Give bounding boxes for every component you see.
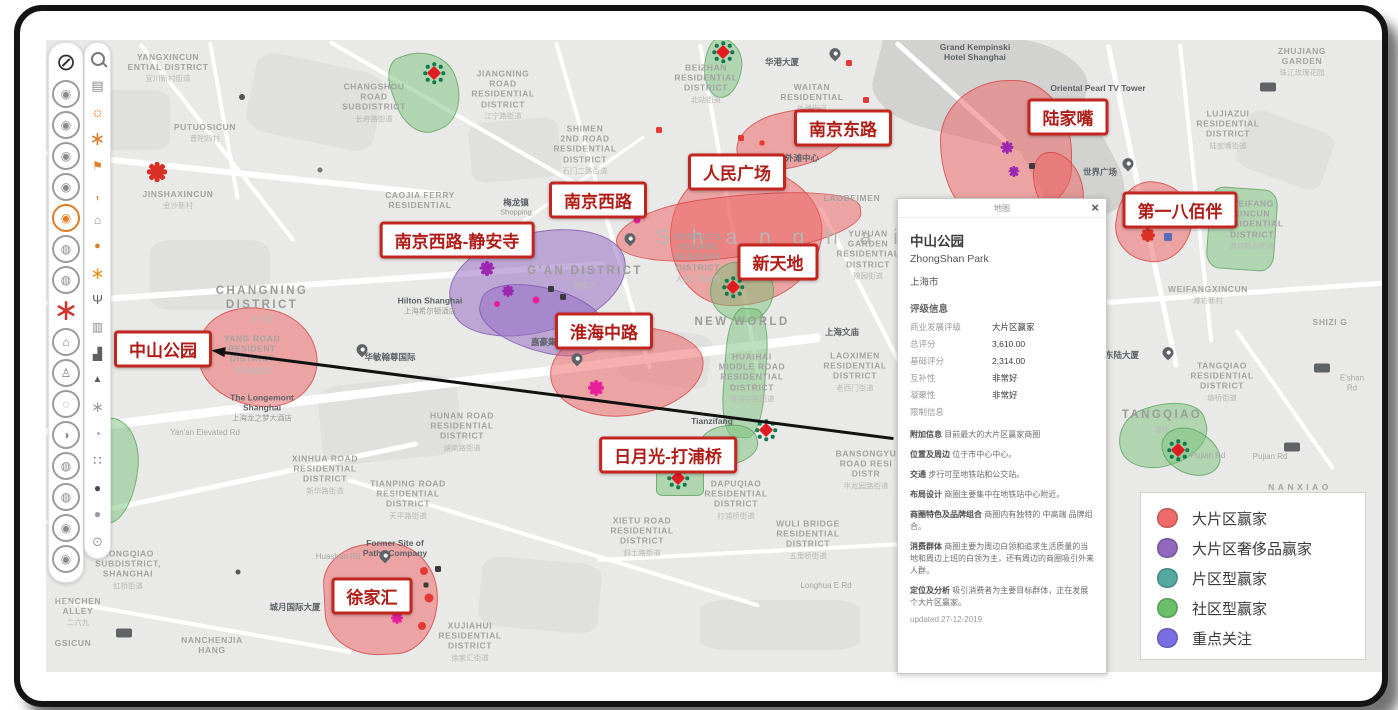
road-shield-badge [1260,83,1276,92]
icon-ring: ◉ [52,142,80,170]
cluster-marker[interactable] [718,47,728,57]
star-marker[interactable] [147,162,167,182]
dot-marker[interactable] [420,567,428,575]
bank-icon[interactable]: ⌂ [52,328,80,355]
cluster-marker[interactable] [429,68,439,78]
star-marker[interactable] [1001,141,1014,154]
icon-ring: ◌ [52,390,80,418]
grid-icon-glyph: ∷ [93,454,101,467]
square-marker[interactable] [435,566,441,572]
poi-name: Yan'an Elevated Rd [170,428,240,438]
place-title: 中山公园 [910,230,1094,250]
globe-icon-glyph: ◍ [61,460,71,472]
gear-icon[interactable]: ∗ [87,262,108,284]
paragraph-label: 定位及分析 [910,586,952,595]
map-district-label: SHIZI G [1313,317,1348,327]
cluster-marker[interactable] [673,473,683,483]
streetview-icon[interactable]: ◉ [52,80,80,107]
globe-icon[interactable]: ◍ [52,266,80,293]
info-paragraph: 附加信息 目前最大的大片区赢家商圈 [910,429,1094,441]
map-district-label: TANGQIAO RESIDENTIAL DISTRICT塘桥街道 [1190,361,1253,404]
info-row: 互补性非常好 [910,370,1094,387]
district-name-zh: 豫园街道 [836,270,899,281]
red-burst-icon[interactable]: ∗ [52,297,80,324]
globe-icon-glyph: ◍ [61,243,71,255]
map-district-label: BANSONGYU ROAD RESI DISTR半淞园路街道 [836,449,897,492]
map-area-label[interactable]: 南京西路-静安寺 [380,222,535,259]
map-district-label: XUJIAHUI RESIDENTIAL DISTRICT徐家汇街道 [438,621,501,664]
info-row: 基础评分2,314.00 [910,353,1094,370]
comma-icon-glyph: , [95,184,100,201]
icon-ring: ◍ [52,452,80,480]
updated-timestamp: updated 27-12-2019 [910,615,1094,624]
road-line [56,598,352,654]
road-line [1106,280,1382,305]
map-area-label[interactable]: 日月光-打浦桥 [599,437,737,474]
map-area-label[interactable]: 中山公园 [114,331,212,368]
icon-ring: ◉ [52,111,80,139]
grid-icon[interactable]: ∷ [87,450,108,472]
dot-marker[interactable] [494,301,500,307]
map-poi-label: 华港大厦 [765,57,799,67]
district-name-zh: 金沙新村 [143,200,214,211]
camera-icon-glyph: ◉ [61,522,71,534]
info-row-label: 总评分 [910,336,992,353]
layers-icon[interactable]: ▤ [87,75,108,97]
toolbar-right: ▤☼∗⚑,⌂●∗Ψ▥▟▲∗◔∷●●⊙ [84,42,111,559]
district-name: XIETU ROAD RESIDENTIAL DISTRICT [610,516,673,547]
circle-icon-glyph: ◌ [62,398,69,410]
paragraph-label: 交通 [910,470,928,479]
map-poi-label: Yan'an Elevated Rd [170,428,240,438]
info-row-label: 凝聚性 [910,387,992,404]
cluster-center [726,280,740,294]
dot-marker[interactable] [236,570,241,575]
restaurant-icon-glyph: Ψ [92,293,103,306]
flag-icon-glyph: ⚑ [92,160,103,172]
map-district-label: NANCHENJIA HANG [181,635,243,655]
search-glass-shape [91,52,105,66]
globe-icon-glyph: ◍ [61,491,71,503]
sun-icon-glyph: ☼ [91,105,105,120]
small-gear-icon-glyph: ∗ [91,400,104,415]
square-marker[interactable] [424,583,429,588]
map-pin-icon[interactable] [354,342,370,358]
disabled-icon[interactable]: ⊘ [52,49,80,76]
legend-item[interactable]: 大片区奢侈品赢家 [1157,533,1365,563]
person-icon-glyph: ♙ [61,367,72,379]
map-poi-label: 东陆大厦 [1105,350,1139,360]
district-name-zh: 新华路街道 [292,485,358,496]
icon-ring: ⌂ [52,328,80,356]
info-row: 商业发展评级大片区赢家 [910,319,1094,336]
info-paragraph: 商圈特色及品牌组合 商圈内有独特的 中高端 品牌组合。 [910,509,1094,533]
legend-swatch [1156,537,1180,560]
globe-icon[interactable]: ◍ [52,452,80,479]
paragraph-label: 商圈特色及品牌组合 [910,510,984,519]
city-block [150,240,270,310]
district-name-zh: 虹桥街道 [95,580,161,591]
grey-dot-icon-glyph: ● [94,508,101,520]
half-circle-icon[interactable]: ◑ [52,421,80,448]
poi-name: 华港大厦 [765,57,799,67]
star-marker[interactable] [1009,166,1020,177]
map-poi-label: 华敏翰尊国际 [364,352,415,362]
cluster-center [716,45,730,59]
district-name: NANCHENJIA HANG [181,635,243,655]
star-marker[interactable] [588,380,604,396]
icon-ring: ◉ [52,545,80,573]
info-paragraph: 定位及分析 吸引消费者为主要目标群体，正在发展个大片区赢家。 [910,585,1094,609]
disabled-icon-glyph: ⊘ [56,51,76,75]
cluster-marker[interactable] [1173,445,1183,455]
poi-name: 城月国际大厦 [269,602,320,612]
pin-circle-icon[interactable]: ◉ [52,545,80,572]
district-name-zh: 珠江玫瑰花园 [1278,67,1326,78]
map-area-label[interactable]: 淮海中路 [555,313,653,350]
cluster-center [1171,443,1185,457]
icon-ring: ◍ [52,266,80,294]
square-marker[interactable] [846,60,852,66]
info-row-value: 2,314.00 [992,353,1025,370]
map-area-label[interactable]: 南京东路 [794,110,892,147]
district-name: YANGXINCUN ENTIAL DISTRICT [127,52,208,72]
square-marker[interactable] [760,141,765,146]
target-icon[interactable]: ⊙ [87,530,108,552]
paragraph-text: 位于市中心中心。 [952,450,1016,459]
legend-label: 片区型赢家 [1192,568,1267,589]
district-name: LAOXIMEN RESIDENTIAL DISTRICT [823,351,886,382]
cluster-marker[interactable] [728,282,738,292]
paragraph-label: 位置及周边 [910,450,952,459]
paragraph-text: 步行可至地铁站和公交站。 [928,470,1024,479]
sun-icon[interactable]: ☼ [87,102,108,124]
square-marker[interactable] [1029,163,1035,169]
orange-dot-icon-glyph: ● [94,241,101,252]
layers-icon-glyph: ▤ [91,79,103,92]
city-block [1232,106,1337,193]
info-row: 凝聚性非常好 [910,387,1094,404]
dark-dot-icon[interactable]: ● [87,477,108,499]
poi-name: 梅龙镇 [500,197,532,207]
poi-name-sub: 上海龙之梦大酒店 [230,413,294,424]
camera-icon[interactable]: ◉ [52,514,80,541]
info-panel: 地图 × 中山公园 ZhongShan Park 上海市 评级信息 商业发展评级… [897,198,1107,674]
globe-icon[interactable]: ◍ [52,483,80,510]
moon-icon[interactable]: ◔ [87,423,108,445]
district-name-zh: 天平路街道 [370,510,446,521]
place-subtitle: ZhongShan Park [910,253,1094,265]
streetview-icon-glyph: ◉ [61,88,71,100]
cluster-center [427,66,441,80]
info-row: 总评分3,610.00 [910,336,1094,353]
info-paragraph: 布局设计 商圈主要集中在地铁站中心附近。 [910,489,1094,501]
district-name: GSICUN [55,638,92,648]
dot-marker[interactable] [239,94,245,100]
legend-swatch [1156,567,1180,590]
colored-layer-icon-glyph: ◉ [61,212,71,224]
legend-label: 大片区赢家 [1192,508,1267,529]
district-name-zh: 塘桥街道 [1190,392,1253,403]
info-row-label: 限制信息 [910,404,992,421]
district-name: JIANGNING ROAD RESIDENTIAL DISTRICT [471,69,534,110]
restaurant-icon[interactable]: Ψ [87,289,108,311]
dot-marker[interactable] [425,594,434,603]
streetview-icon-glyph: ◉ [61,119,71,131]
district-name: JINSHAXINCUN [143,189,214,199]
legend-label: 重点关注 [1192,628,1252,649]
globe-icon-glyph: ◍ [61,274,71,286]
district-name: ZHUJIANG GARDEN [1278,46,1326,66]
district-name: BANSONGYU ROAD RESI DISTR [836,449,897,480]
map-polygon-changshou-green[interactable] [381,41,471,141]
flag-icon[interactable]: ⚑ [87,155,108,177]
toolbar-left: ⊘◉◉◉◉◉◍◍∗⌂♙◌◑◍◍◉◉ [48,42,84,583]
legend-label: 社区型赢家 [1192,598,1267,619]
map-district-label: WULI BRIDGE RESIDENTIAL DISTRICT五里桥街道 [776,519,840,562]
arrow-head [211,346,226,358]
dot-marker[interactable] [418,622,426,630]
info-row-label: 商业发展评级 [910,319,992,336]
district-name-zh: 打浦桥街道 [704,510,767,521]
bag-icon-glyph: ▥ [92,321,103,333]
district-name-zh: 半淞园路街道 [836,480,897,491]
info-row-value: 非常好 [992,370,1018,387]
map-district-label: LAOXIMEN RESIDENTIAL DISTRICT老西门街道 [823,351,886,394]
poi-name: 华敏翰尊国际 [364,352,415,362]
poi-name: Pujian Rd [1253,452,1288,462]
map-district-label: JINSHAXINCUN金沙新村 [143,189,214,211]
bag-icon[interactable]: ▥ [87,316,108,338]
map-poi-label: Longhua E Rd [800,581,851,591]
info-row-label: 互补性 [910,370,992,387]
district-name-zh: 北站街道 [674,94,737,105]
info-panel-body: 中山公园 ZhongShan Park 上海市 评级信息 商业发展评级大片区赢家… [898,218,1106,624]
icon-ring: ◉ [52,173,80,201]
map-area-label[interactable]: 第一八佰伴 [1123,192,1238,229]
icon-ring: ◍ [52,483,80,511]
rating-section-title: 评级信息 [910,301,1094,315]
cluster-marker[interactable] [761,425,771,435]
district-name: WULI BRIDGE RESIDENTIAL DISTRICT [776,519,840,550]
streetview-icon[interactable]: ◉ [52,142,80,169]
info-panel-header-label: 地图 [994,203,1010,214]
city-block [477,555,603,635]
info-row-label: 基础评分 [910,353,992,370]
paragraph-label: 消费群体 [910,542,944,551]
district-name-zh: 徐家汇街道 [438,652,501,663]
poi-name: Longhua E Rd [800,581,851,591]
district-name: DAPUQIAO RESIDENTIAL DISTRICT [704,479,767,510]
square-marker[interactable] [656,127,662,133]
map-poi-label: 上海文庙 [825,327,859,337]
legend-label: 大片区奢侈品赢家 [1192,538,1312,559]
dot-marker[interactable] [533,297,540,304]
road-line [208,42,240,200]
info-row-value: 3,610.00 [992,336,1025,353]
chart-icon-glyph: ▟ [93,348,102,360]
info-paragraph: 交通 步行可至地铁站和公交站。 [910,469,1094,481]
map-area-label[interactable]: 人民广场 [688,154,786,191]
city-block [700,600,860,650]
map-pin-icon[interactable] [827,46,843,62]
legend: 大片区赢家大片区奢侈品赢家片区型赢家社区型赢家重点关注 [1140,492,1366,660]
paragraph-label: 附加信息 [910,430,944,439]
square-marker[interactable] [738,135,744,141]
target-icon-glyph: ⊙ [92,535,103,548]
icon-ring: ♙ [52,359,80,387]
map-district-label: JIANGNING ROAD RESIDENTIAL DISTRICT江宁路街道 [471,69,534,122]
map-district-label: XIETU ROAD RESIDENTIAL DISTRICT斜土路街道 [610,516,673,559]
map-district-label: DAPUQIAO RESIDENTIAL DISTRICT打浦桥街道 [704,479,767,522]
star-marker[interactable] [1141,228,1155,242]
comma-icon[interactable]: , [87,182,108,204]
poi-name: E'shan Rd [1337,373,1367,392]
square-marker[interactable] [560,294,566,300]
legend-swatch [1156,627,1180,650]
poi-name: 东陆大厦 [1105,350,1139,360]
icon-ring: ◉ [52,80,80,108]
district-name: TANGQIAO RESIDENTIAL DISTRICT [1190,361,1253,392]
building-icon-glyph: ⌂ [94,214,101,226]
map-district-label: GSICUN [55,638,92,648]
icon-ring: ◑ [52,421,80,449]
star-marker[interactable] [480,261,495,276]
map-poi-label: E'shan Rd [1337,373,1367,392]
info-row: 限制信息 [910,404,1094,421]
icon-ring: ◉ [52,204,80,232]
map-poi-label: 梅龙镇Shopping [500,197,532,216]
legend-item[interactable]: 社区型赢家 [1157,593,1365,623]
paragraph-text: 目前最大的大片区赢家商圈 [944,430,1040,439]
map-district-label: ZHUJIANG GARDEN珠江玫瑰花园 [1278,46,1326,78]
grey-dot-icon[interactable]: ● [87,504,108,526]
district-name: WAITAN RESIDENTIAL [780,82,843,102]
paragraph-text: 商圈主要集中在地铁站中心附近。 [944,490,1064,499]
rating-rows: 商业发展评级大片区赢家总评分3,610.00基础评分2,314.00互补性非常好… [910,319,1094,421]
paragraph-label: 布局设计 [910,490,944,499]
mountain-icon-glyph: ▲ [93,375,103,385]
building-icon[interactable]: ⌂ [87,209,108,231]
chart-icon[interactable]: ▟ [87,343,108,365]
legend-item[interactable]: 片区型赢家 [1157,563,1365,593]
orange-dot-icon[interactable]: ● [87,236,108,258]
district-name-zh: 老西门街道 [823,382,886,393]
cluster-center [759,423,773,437]
pin-circle-icon-glyph: ◉ [61,553,71,565]
icon-ring: ◉ [52,514,80,542]
legend-swatch [1156,597,1180,620]
legend-item[interactable]: 大片区赢家 [1157,503,1365,533]
streetview-icon-glyph: ◉ [61,150,71,162]
burst-icon-glyph: ∗ [90,130,106,149]
map-area-label[interactable]: 陆家嘴 [1028,99,1109,136]
moon-icon-glyph: ◔ [94,428,101,440]
circle-icon[interactable]: ◌ [52,390,80,417]
streetview-icon-glyph: ◉ [61,181,71,193]
half-circle-icon-glyph: ◑ [62,429,69,441]
info-row-value: 非常好 [992,387,1018,404]
close-icon[interactable]: × [1091,200,1099,215]
square-marker[interactable] [1164,233,1172,241]
info-paragraph: 位置及周边 位于市中心中心。 [910,449,1094,461]
map-poi-label: Pujian Rd [1253,452,1288,462]
district-name: SHIZI G [1313,317,1348,327]
info-row-value: 大片区赢家 [992,319,1035,336]
burst-icon[interactable]: ∗ [87,128,108,150]
colored-layer-icon[interactable]: ◉ [52,204,80,231]
streetview-icon[interactable]: ◉ [52,111,80,138]
legend-swatch [1156,507,1180,530]
square-marker[interactable] [548,286,554,292]
place-city: 上海市 [910,274,1094,288]
star-marker[interactable] [502,285,514,297]
mountain-icon[interactable]: ▲ [87,370,108,392]
map-area-label[interactable]: 南京西路 [549,182,647,219]
info-paragraph: 消费群体 商圈主要为周边白领和追求生活质量的当地和周边上班的白领为主，还有周边的… [910,541,1094,577]
info-panel-header: 地图 × [898,199,1106,218]
streetview-icon[interactable]: ◉ [52,173,80,200]
small-gear-icon[interactable]: ∗ [87,396,108,418]
map-area-label[interactable]: 新天地 [738,244,819,281]
map-poi-label: 城月国际大厦 [269,602,320,612]
poi-name: 上海文庙 [825,327,859,337]
legend-item[interactable]: 重点关注 [1157,623,1365,653]
globe-icon[interactable]: ◍ [52,235,80,262]
search-icon[interactable] [87,48,108,70]
road-shield-badge [1284,443,1300,452]
gear-icon-glyph: ∗ [90,265,104,282]
red-burst-icon-glyph: ∗ [53,296,78,326]
road-shield-badge [1314,364,1330,373]
road-shield-badge [116,629,132,638]
description-paragraphs: 附加信息 目前最大的大片区赢家商圈位置及周边 位于市中心中心。交通 步行可至地铁… [910,429,1094,609]
bank-icon-glyph: ⌂ [62,336,69,348]
person-icon[interactable]: ♙ [52,359,80,386]
map-app-window: S h a n g h a i 上 海 市 YANGXINCUN ENTIAL … [0,0,1398,710]
district-name-zh: 二六九 [55,617,101,628]
square-marker[interactable] [863,97,869,103]
icon-ring: ◍ [52,235,80,263]
dark-dot-icon-glyph: ● [94,482,101,494]
map-area-label[interactable]: 徐家汇 [332,578,413,615]
dot-marker[interactable] [318,168,323,173]
